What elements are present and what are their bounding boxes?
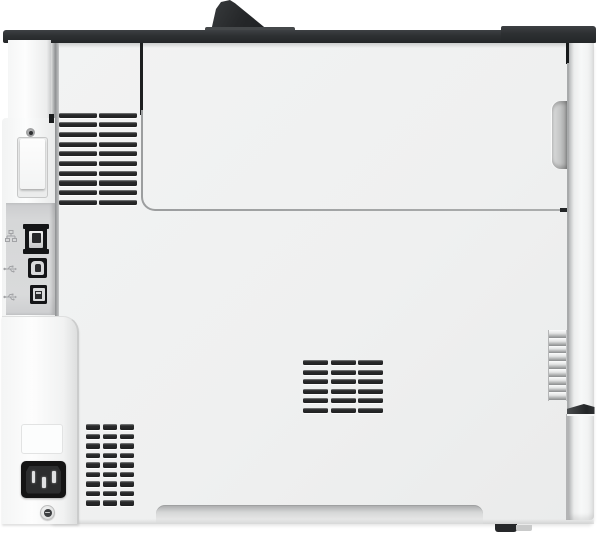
rear-door-seam-vertical bbox=[140, 43, 143, 115]
vent-slot bbox=[303, 370, 328, 375]
vent-slot bbox=[303, 360, 328, 365]
vent-slot bbox=[86, 462, 100, 468]
right-side-panel bbox=[569, 43, 594, 520]
vent-slot bbox=[86, 424, 100, 430]
vent-slot bbox=[120, 481, 134, 487]
vent-slot bbox=[331, 389, 356, 394]
vent-slot bbox=[99, 122, 137, 127]
vent-slot bbox=[358, 408, 383, 413]
vent-slot bbox=[59, 122, 97, 127]
vent-slot bbox=[303, 379, 328, 384]
vent-slot bbox=[99, 161, 137, 166]
vent-slot bbox=[59, 132, 97, 137]
power-pin bbox=[42, 477, 46, 488]
side-slat bbox=[549, 385, 566, 393]
power-pin bbox=[32, 471, 36, 483]
vent-slot bbox=[358, 398, 383, 403]
vent-slot bbox=[120, 500, 134, 506]
vent-slot bbox=[59, 180, 97, 185]
vent-slot bbox=[99, 171, 137, 176]
side-slat bbox=[549, 330, 566, 338]
printer-foot-shadow bbox=[516, 525, 532, 531]
vent-slot bbox=[86, 453, 100, 459]
side-slat bbox=[549, 338, 566, 346]
panel-gap-mark bbox=[49, 114, 54, 123]
vent-slot bbox=[99, 190, 137, 195]
vent-slot bbox=[59, 142, 97, 147]
vent-slot bbox=[120, 443, 134, 449]
vent-slot bbox=[331, 360, 356, 365]
latch-slider bbox=[20, 139, 45, 189]
vent-slot bbox=[358, 360, 383, 365]
vent-slot bbox=[103, 424, 117, 430]
vent-slot bbox=[99, 151, 137, 156]
usb-icon bbox=[3, 264, 17, 274]
top-edge-right bbox=[501, 26, 596, 43]
usb-a-tongue bbox=[36, 292, 41, 294]
vent-slot bbox=[59, 190, 97, 195]
vent-slot bbox=[99, 142, 137, 147]
vent-slot bbox=[120, 453, 134, 459]
grip-recess bbox=[552, 101, 568, 169]
vent-slot bbox=[331, 379, 356, 384]
vent-slot bbox=[358, 389, 383, 394]
vent-slot bbox=[59, 171, 97, 176]
vent-slot bbox=[120, 462, 134, 468]
vent-slot bbox=[103, 462, 117, 468]
vent-slot bbox=[303, 398, 328, 403]
vent-slot bbox=[358, 379, 383, 384]
vent-slot bbox=[103, 491, 117, 497]
top-edge-left bbox=[3, 30, 503, 43]
side-panel-notch-highlight bbox=[567, 414, 594, 416]
side-slat bbox=[549, 377, 566, 385]
vent-slot bbox=[103, 443, 117, 449]
side-slat bbox=[549, 369, 566, 377]
printer-rear-photo bbox=[0, 0, 600, 533]
vent-slot bbox=[303, 408, 328, 413]
vent-slot bbox=[86, 481, 100, 487]
top-shadow bbox=[51, 43, 594, 48]
vent-slot bbox=[99, 132, 137, 137]
rear-door-seam-corner bbox=[141, 110, 163, 211]
ethernet-opening bbox=[32, 233, 41, 243]
vent-slot bbox=[59, 151, 97, 156]
vent-slot bbox=[99, 180, 137, 185]
printer-foot bbox=[495, 524, 517, 532]
power-pin bbox=[52, 471, 56, 483]
vent-slot bbox=[103, 434, 117, 440]
vent-slot bbox=[99, 200, 137, 205]
vent-slot bbox=[120, 491, 134, 497]
rating-label-area bbox=[21, 424, 63, 454]
left-column-upper bbox=[8, 40, 51, 128]
vent-slot bbox=[103, 481, 117, 487]
usb-b-opening bbox=[35, 264, 41, 272]
vent-slot bbox=[331, 370, 356, 375]
vent-slot bbox=[86, 434, 100, 440]
vent-slot bbox=[86, 500, 100, 506]
side-slat bbox=[549, 346, 566, 354]
vent-slot bbox=[120, 434, 134, 440]
side-vent-slats bbox=[548, 330, 567, 401]
side-slat bbox=[549, 361, 566, 369]
vent-slot bbox=[103, 453, 117, 459]
vent-slot bbox=[59, 161, 97, 166]
vent-slot bbox=[99, 113, 137, 118]
vent-slot bbox=[86, 443, 100, 449]
vent-slot bbox=[59, 200, 97, 205]
vent-slot bbox=[358, 370, 383, 375]
rear-door-seam-horizontal bbox=[160, 209, 564, 211]
vent-slot bbox=[59, 113, 97, 118]
vent-slot bbox=[86, 491, 100, 497]
vent-slot bbox=[103, 500, 117, 506]
vent-slot bbox=[303, 389, 328, 394]
side-slat bbox=[549, 353, 566, 361]
vent-slot bbox=[331, 408, 356, 413]
vent-slot bbox=[331, 398, 356, 403]
vent-slot bbox=[120, 472, 134, 478]
vent-slot bbox=[86, 472, 100, 478]
usb-icon bbox=[3, 292, 17, 302]
ethernet-icon bbox=[5, 230, 17, 243]
side-slat bbox=[549, 392, 566, 400]
screw-core bbox=[29, 131, 33, 135]
vent-slot bbox=[103, 472, 117, 478]
vent-slot bbox=[120, 424, 134, 430]
